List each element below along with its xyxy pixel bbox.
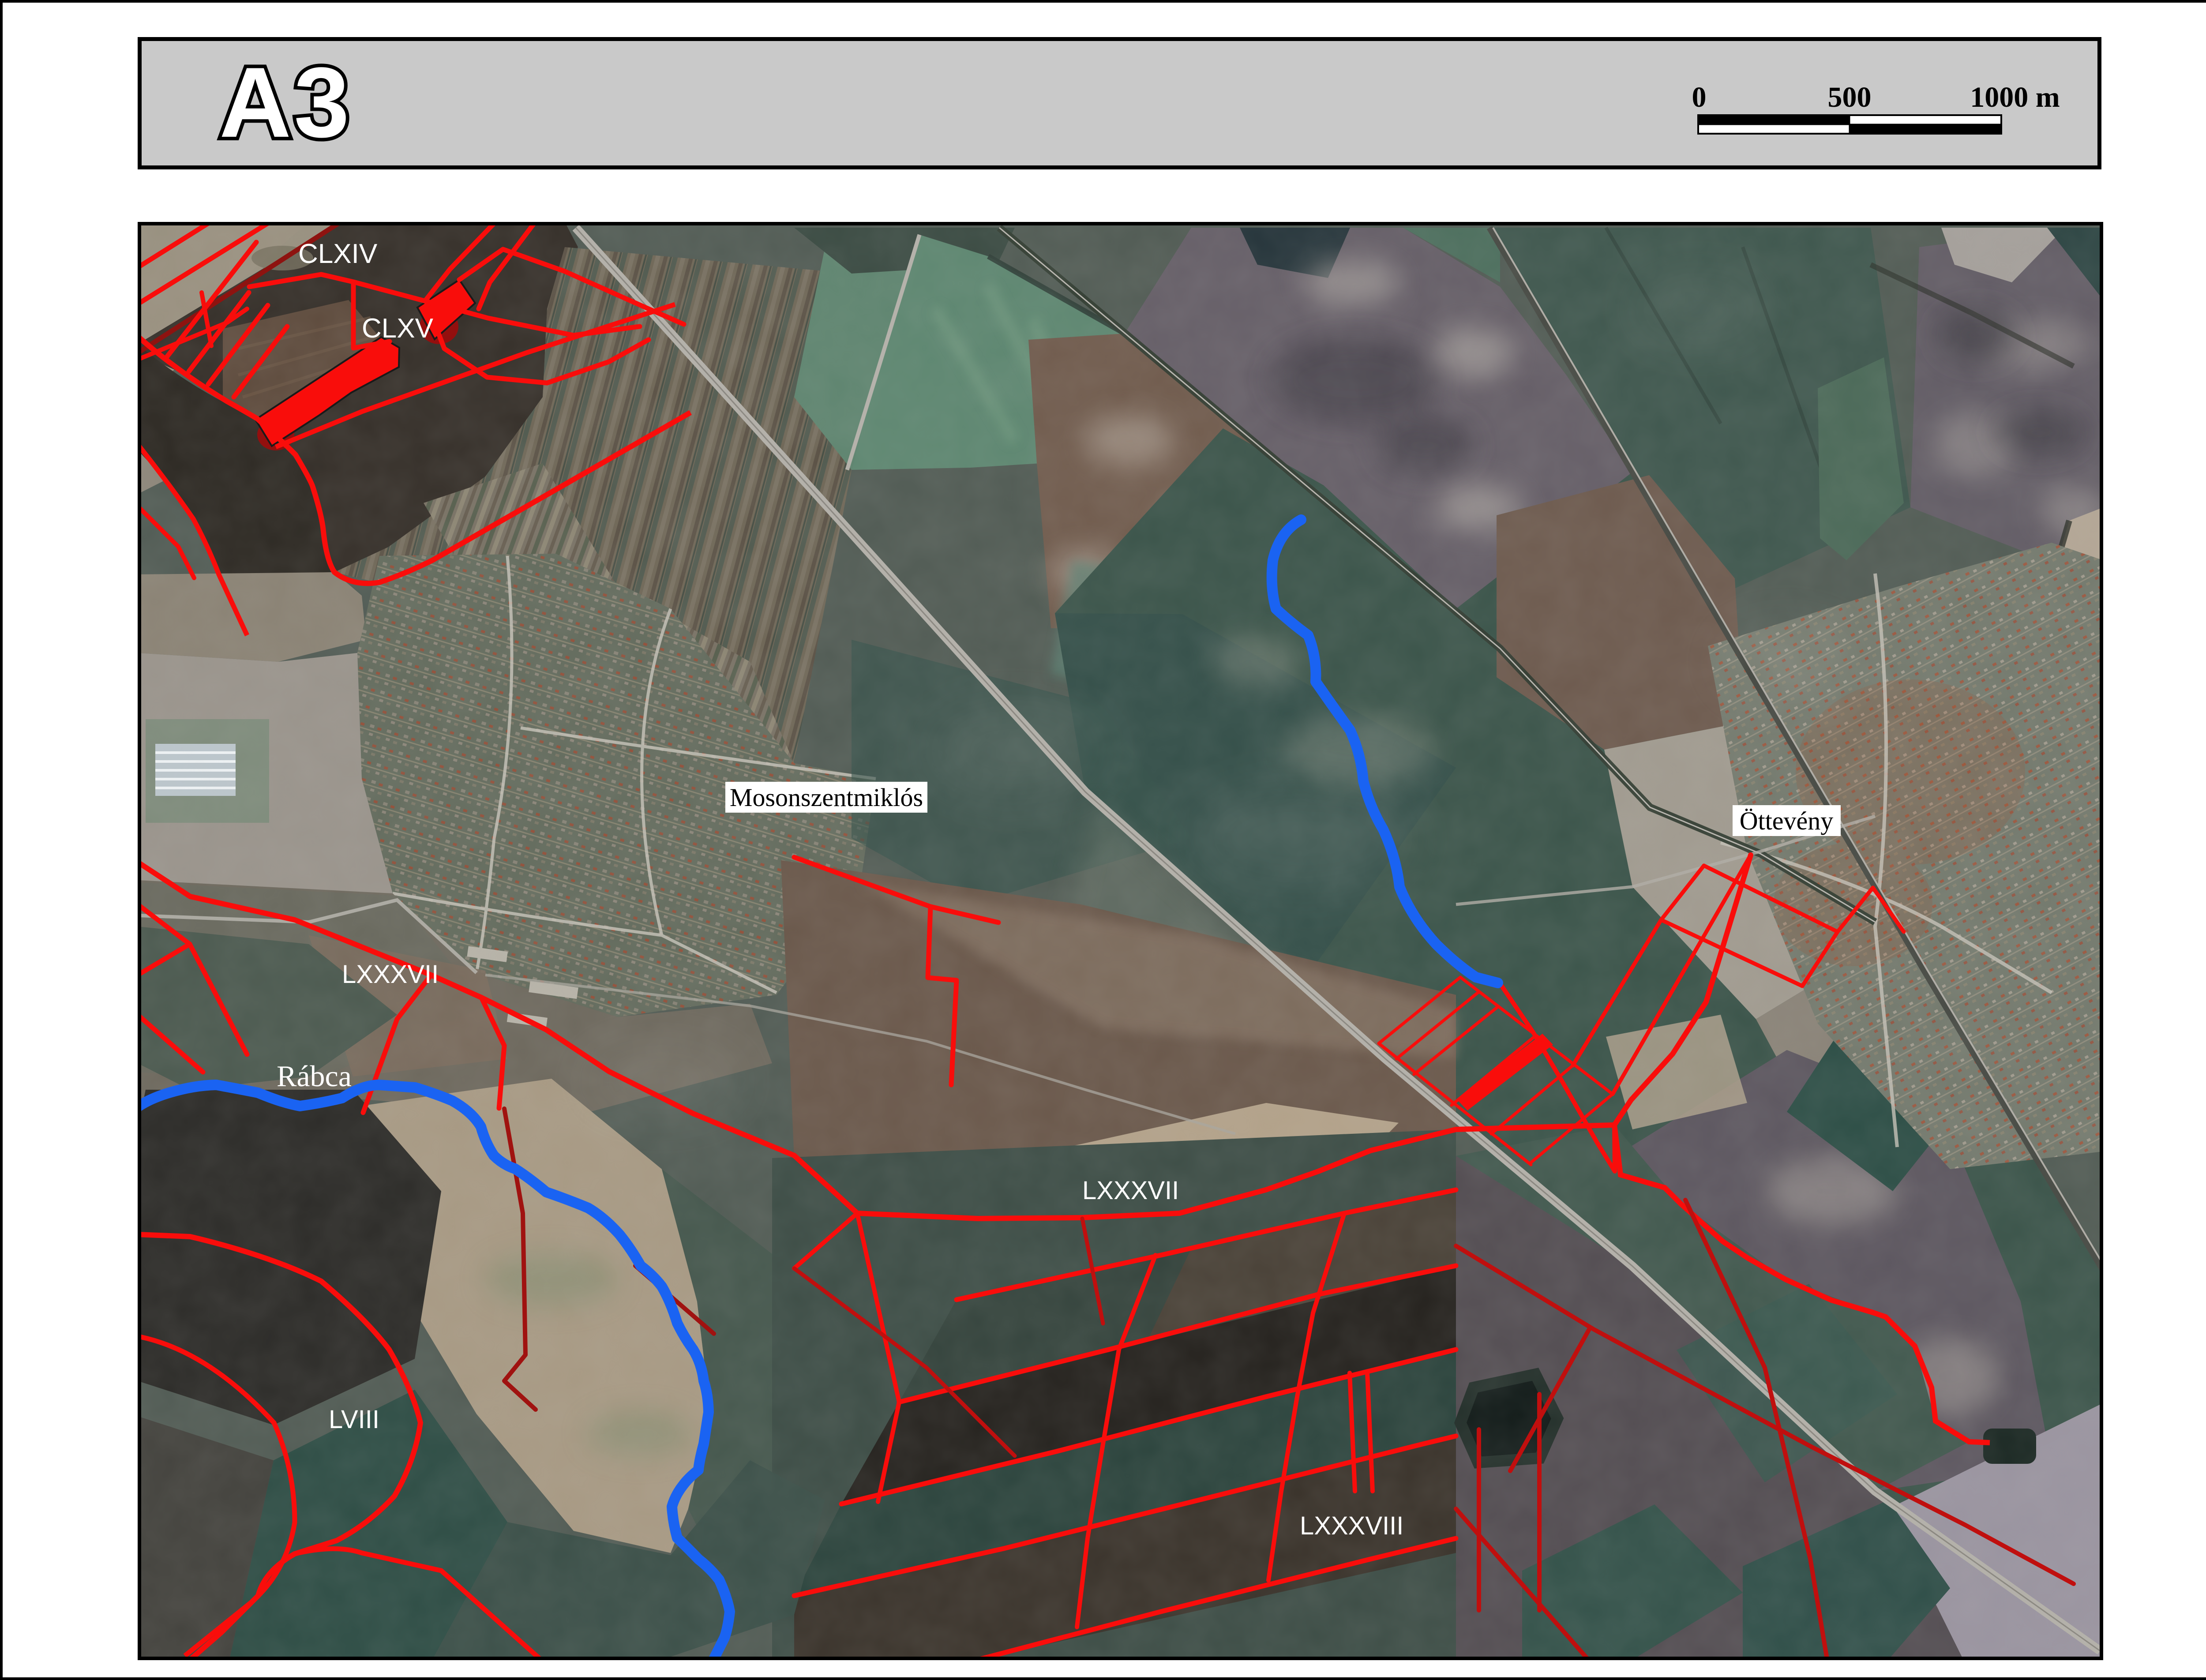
svg-text:CLXIV: CLXIV	[298, 239, 378, 269]
svg-text:LXXXVII: LXXXVII	[342, 960, 439, 989]
svg-text:CLXV: CLXV	[362, 313, 434, 344]
svg-text:500: 500	[1828, 81, 1872, 113]
svg-text:LXXXVII: LXXXVII	[1082, 1176, 1179, 1205]
svg-text:Rábca: Rábca	[277, 1059, 352, 1093]
svg-text:Öttevény: Öttevény	[1740, 806, 1834, 835]
svg-text:LXXXVIII: LXXXVIII	[1300, 1511, 1403, 1540]
svg-text:LVIII: LVIII	[329, 1405, 379, 1434]
svg-text:Mosonszentmiklós: Mosonszentmiklós	[730, 783, 923, 812]
svg-text:A3: A3	[219, 46, 352, 158]
svg-text:1000 m: 1000 m	[1970, 81, 2060, 113]
svg-text:0: 0	[1692, 81, 1707, 113]
